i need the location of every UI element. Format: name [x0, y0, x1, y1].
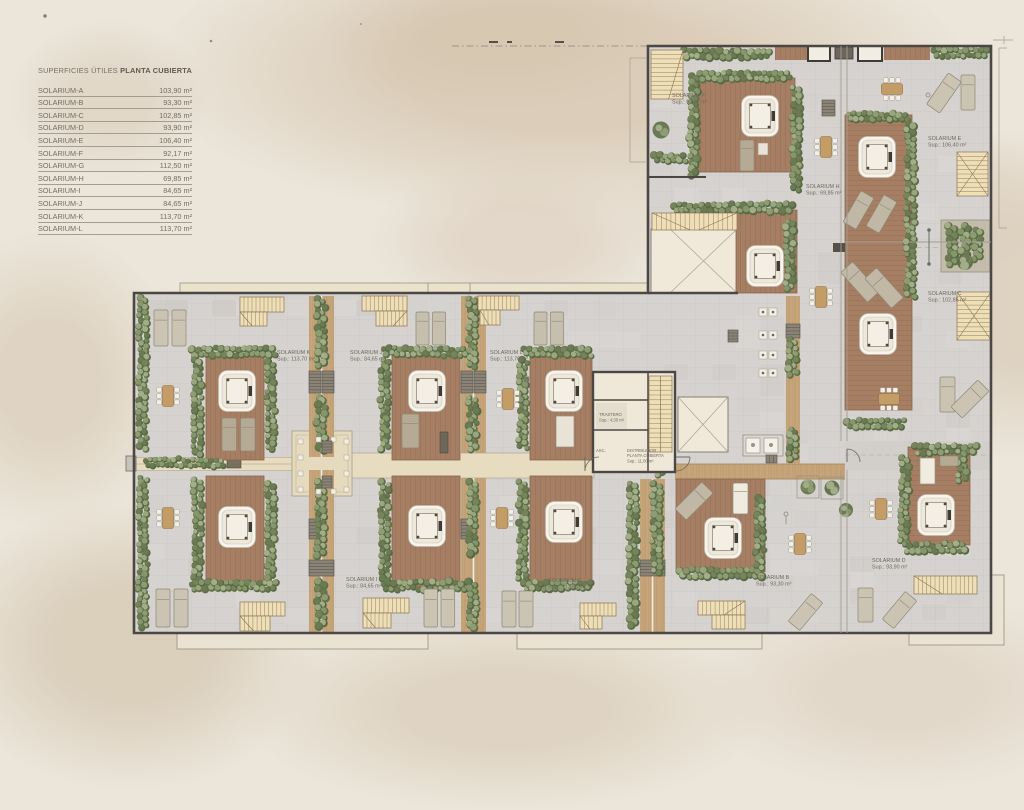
svg-text:SOLARIUM K: SOLARIUM K — [277, 350, 311, 356]
svg-text:Sup.: 112,50 m²: Sup.: 112,50 m² — [548, 585, 586, 591]
svg-text:Sup.: 4,30 m²: Sup.: 4,30 m² — [599, 417, 625, 422]
svg-text:Sup.: 113,70 m²: Sup.: 113,70 m² — [277, 357, 315, 363]
svg-text:SOLARIUM D: SOLARIUM D — [872, 558, 906, 564]
svg-text:TRASTERO: TRASTERO — [599, 412, 623, 417]
svg-text:SOLARIUM E: SOLARIUM E — [928, 136, 962, 142]
svg-text:SOLARIUM C: SOLARIUM C — [928, 291, 962, 297]
svg-text:SOLARIUM I: SOLARIUM I — [346, 577, 377, 583]
svg-text:SOLARIUM F: SOLARIUM F — [672, 93, 706, 99]
svg-text:Sup.: 113,70 m²: Sup.: 113,70 m² — [490, 357, 528, 363]
svg-text:SOLARIUM H: SOLARIUM H — [806, 184, 840, 190]
svg-text:SOLARIUM L: SOLARIUM L — [490, 350, 523, 356]
svg-text:Sup.: 93,30 m²: Sup.: 93,30 m² — [756, 582, 792, 588]
svg-text:ASC.: ASC. — [596, 448, 606, 453]
svg-text:Sup.: 69,85 m²: Sup.: 69,85 m² — [806, 191, 842, 197]
svg-text:Sup.: 92,17 m²: Sup.: 92,17 m² — [672, 100, 708, 106]
svg-text:Sup.: 11,00 m²: Sup.: 11,00 m² — [627, 458, 654, 463]
svg-text:SOLARIUM G: SOLARIUM G — [548, 578, 582, 584]
svg-text:Sup.: 102,85 m²: Sup.: 102,85 m² — [928, 298, 967, 304]
svg-text:Sup.: 93,90 m²: Sup.: 93,90 m² — [872, 565, 908, 571]
svg-text:Sup.: 84,65 m²: Sup.: 84,65 m² — [346, 584, 382, 590]
svg-text:SOLARIUM B: SOLARIUM B — [756, 575, 790, 581]
svg-text:Sup.: 84,65 m²: Sup.: 84,65 m² — [350, 357, 386, 363]
svg-text:Sup.: 106,40 m²: Sup.: 106,40 m² — [928, 143, 967, 149]
svg-text:SOLARIUM J: SOLARIUM J — [350, 350, 383, 356]
